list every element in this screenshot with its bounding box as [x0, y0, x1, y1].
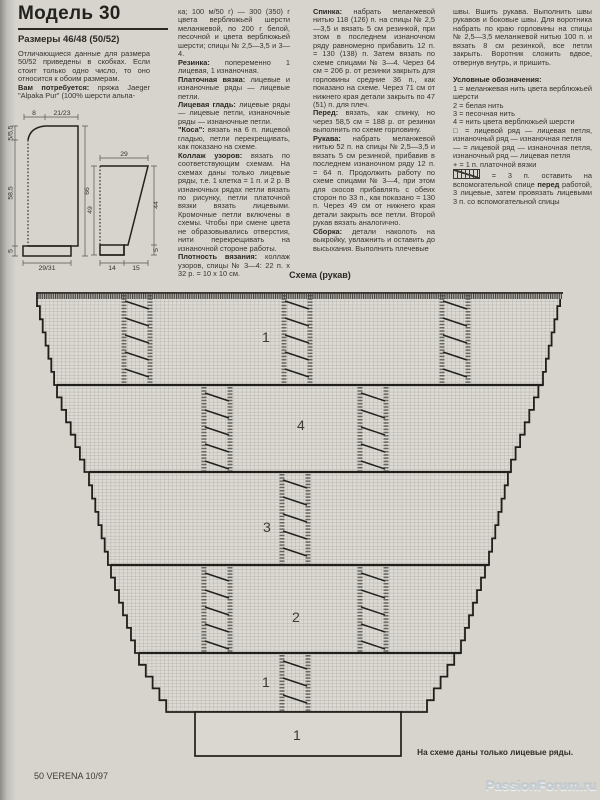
chart-band-label: 4	[297, 417, 305, 433]
body-rib-band	[23, 246, 71, 256]
sleeve-length-label: 49	[87, 206, 94, 214]
sleeve-outline	[100, 166, 148, 255]
body-rib-height-label: 5	[8, 249, 15, 253]
text-column-4: швы. Вшить рукава. Выполнить швы рукавов…	[453, 8, 592, 206]
chart-band-label: 2	[292, 609, 300, 625]
paragraph: — = лицевой ряд — изнаночная петля, изна…	[453, 144, 592, 161]
sleeve-rib-height-label: 5	[153, 248, 160, 252]
chart-title: Схема (рукав)	[20, 270, 600, 280]
magazine-page: Модель 30 Размеры 46/48 (50/52) Отличающ…	[0, 0, 600, 800]
sleeve-slope-length-label: 44	[153, 201, 160, 209]
text-column-1: Отличающиеся данные для размера 50/52 пр…	[18, 50, 150, 101]
sleeve-top-width-label: 29	[120, 151, 128, 158]
body-neck-width-label: 8	[32, 110, 36, 117]
watermark: PassionForum.ru	[486, 778, 597, 793]
paragraph: Платочная вязка: лицевые и изнаночные ря…	[178, 76, 290, 101]
paragraph: ка; 100 м/50 г) — 300 (350) г цвета верб…	[178, 8, 290, 59]
paragraph: "Коса": вязать на 6 п. лицевой гладью, п…	[178, 126, 290, 151]
knitting-chart: 143211	[0, 288, 600, 768]
chart-band-label: 3	[263, 519, 271, 535]
page-title: Модель 30	[18, 3, 121, 25]
paragraph: Лицевая гладь: лицевые ряды — лицевые пе…	[178, 101, 290, 126]
paragraph: Сборка: детали наколоть на выкройку, увл…	[313, 228, 435, 253]
body-shoulder-width-label: 21/23	[53, 110, 70, 117]
paragraph: Коллаж узоров: вязать по соответствующим…	[178, 152, 290, 253]
body-neck-depth-label: 5/5,5	[8, 125, 15, 140]
sleeve-bottom-dim	[100, 260, 148, 266]
sleeve-chart-svg: 143211	[0, 288, 600, 768]
paragraph: Вам потребуется: пряжа Jaeger "Alpaka Pu…	[18, 84, 150, 101]
paragraph: Отличающиеся данные для размера 50/52 пр…	[18, 50, 150, 84]
paragraph: Перед: вязать, как спинку, но через 58,5…	[313, 109, 435, 134]
body-outline	[28, 126, 78, 246]
cable-symbol-icon	[453, 169, 480, 179]
measurement-diagram: 8 21/23 5/5,5 58,5 5 66 29/31 29 49 44 5…	[6, 108, 181, 273]
title-rule	[18, 28, 168, 30]
paragraph: 1 = меланжевая нить цвета верблюжьей шер…	[453, 85, 592, 102]
sleeve-rib-band	[100, 245, 124, 255]
paragraph: □ = лицевой ряд — лицевая петля, изнаноч…	[453, 127, 592, 144]
text-column-2: ка; 100 м/50 г) — 300 (350) г цвета верб…	[178, 8, 290, 279]
paragraph: Резинка: попеременно 1 лицевая, 1 изнано…	[178, 59, 290, 76]
chart-rib-label: 1	[293, 727, 301, 743]
paragraph: + = 1 п. платочной вязки	[453, 161, 592, 169]
paragraph: Спинка: набрать меланжевой нитью 118 (12…	[313, 8, 435, 109]
body-side-length-label: 58,5	[8, 186, 15, 199]
sleeve-right-dim	[151, 166, 157, 255]
paragraph: швы. Вшить рукава. Выполнить швы рукавов…	[453, 8, 592, 67]
paragraph: Рукава: набрать меланжевой нитью 52 п. н…	[313, 135, 435, 228]
chart-note: На схеме даны только лицевые ряды.	[417, 748, 573, 757]
chart-band-label: 1	[262, 329, 270, 345]
chart-band-label: 1	[262, 674, 270, 690]
body-neck-curve	[28, 126, 45, 140]
chart-bindoff-row	[38, 294, 562, 299]
sizes-heading: Размеры 46/48 (50/52)	[18, 34, 119, 45]
text-column-3: Спинка: набрать меланжевой нитью 118 (12…	[313, 8, 435, 253]
page-footer: 50 VERENA 10/97	[34, 771, 108, 781]
body-total-length-label: 66	[84, 187, 91, 195]
paragraph: = 3 п. оставить на вспомогательной спице…	[453, 169, 592, 206]
